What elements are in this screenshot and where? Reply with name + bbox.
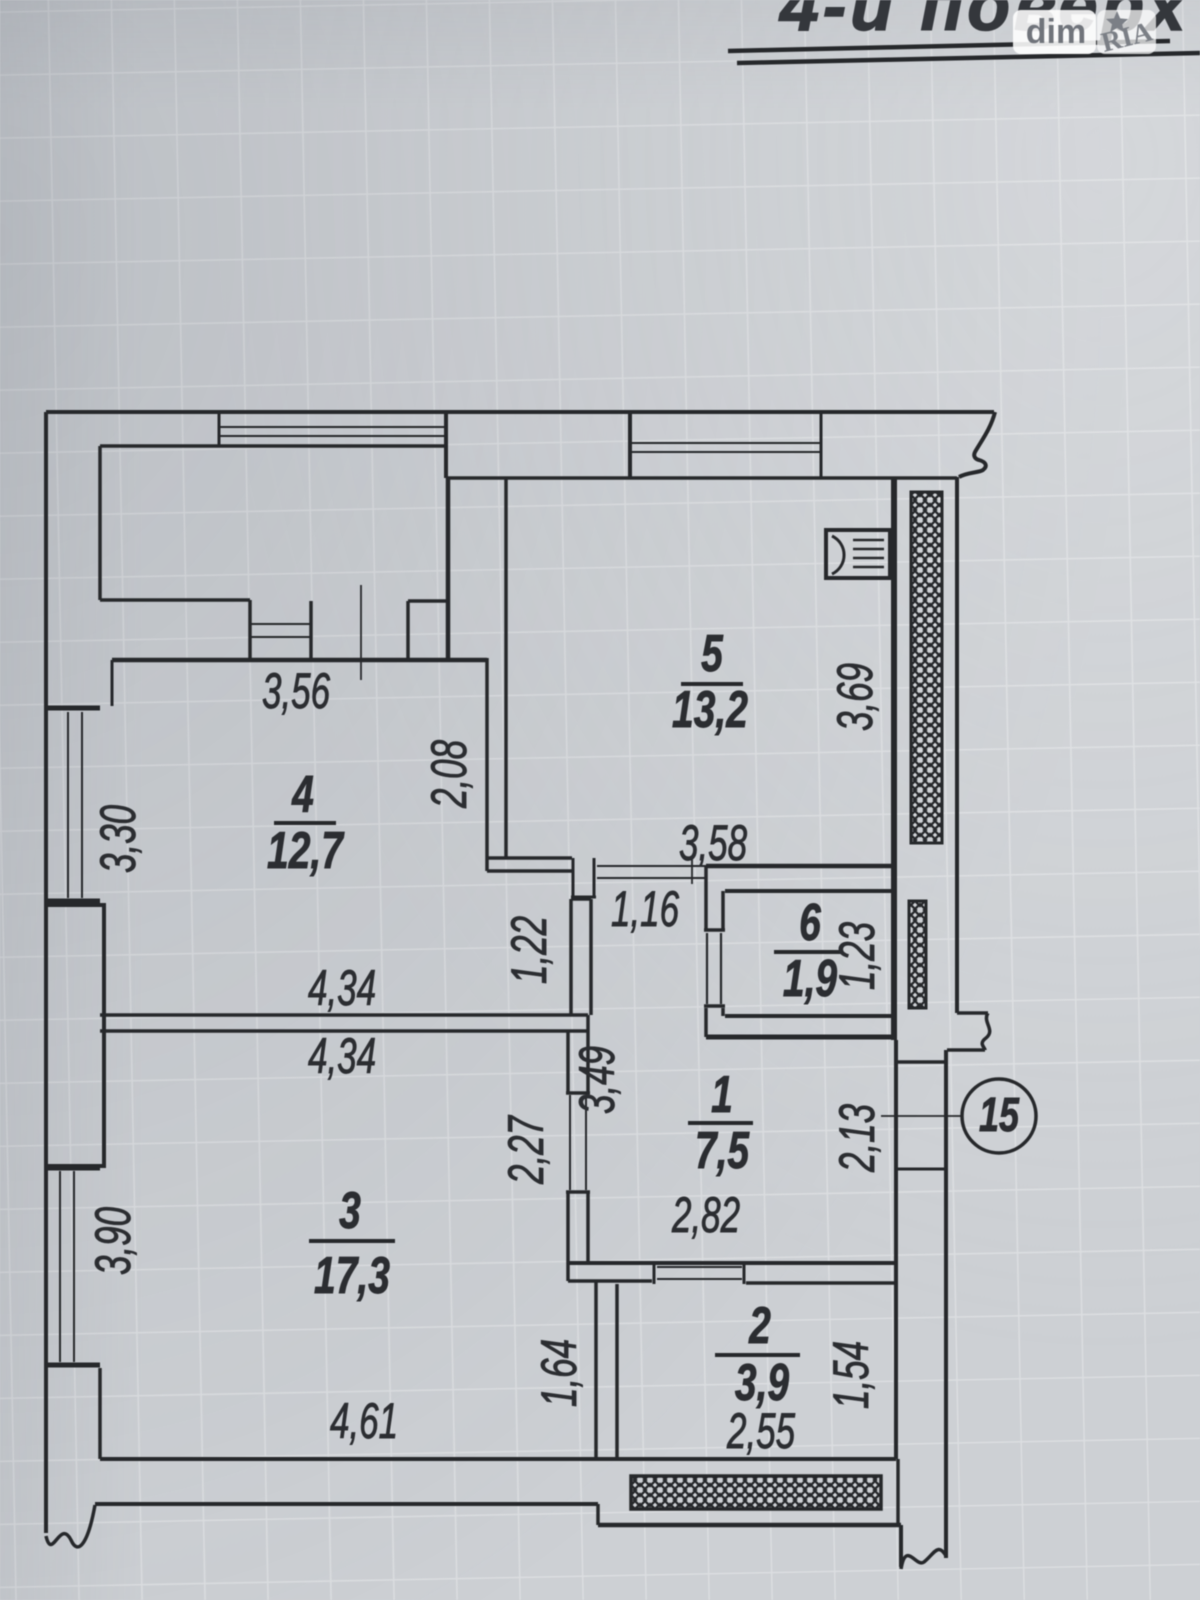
svg-text:2,27: 2,27 (499, 1114, 555, 1185)
svg-text:2: 2 (748, 1295, 771, 1354)
svg-text:2,13: 2,13 (830, 1104, 886, 1173)
svg-text:1,23: 1,23 (830, 922, 886, 990)
svg-text:3,69: 3,69 (828, 663, 884, 731)
svg-text:6: 6 (799, 892, 821, 951)
svg-text:4,34: 4,34 (308, 961, 376, 1017)
svg-text:4,61: 4,61 (330, 1394, 398, 1450)
svg-text:1,54: 1,54 (824, 1341, 880, 1409)
svg-text:3: 3 (339, 1180, 361, 1239)
svg-text:1,64: 1,64 (532, 1339, 588, 1407)
svg-text:17,3: 17,3 (314, 1245, 390, 1304)
svg-text:3,30: 3,30 (91, 805, 147, 873)
svg-text:dim: dim (1026, 13, 1086, 51)
svg-text:3,58: 3,58 (679, 816, 747, 872)
svg-text:5: 5 (701, 623, 724, 682)
svg-text:7,5: 7,5 (695, 1120, 750, 1179)
svg-text:3,90: 3,90 (86, 1207, 142, 1275)
svg-text:3,9: 3,9 (735, 1352, 790, 1411)
svg-text:3,56: 3,56 (262, 664, 330, 720)
svg-text:1,16: 1,16 (611, 882, 679, 938)
svg-text:12,7: 12,7 (267, 820, 345, 879)
svg-text:2,08: 2,08 (422, 740, 478, 809)
svg-text:13,2: 13,2 (672, 679, 748, 738)
svg-text:3,49: 3,49 (570, 1046, 626, 1114)
svg-text:15: 15 (979, 1088, 1020, 1141)
svg-text:2,55: 2,55 (726, 1404, 796, 1460)
svg-text:4,34: 4,34 (308, 1029, 376, 1085)
svg-text:1,22: 1,22 (502, 916, 558, 984)
svg-text:2,82: 2,82 (671, 1188, 740, 1244)
svg-text:4: 4 (291, 764, 314, 823)
svg-text:1: 1 (711, 1064, 733, 1123)
